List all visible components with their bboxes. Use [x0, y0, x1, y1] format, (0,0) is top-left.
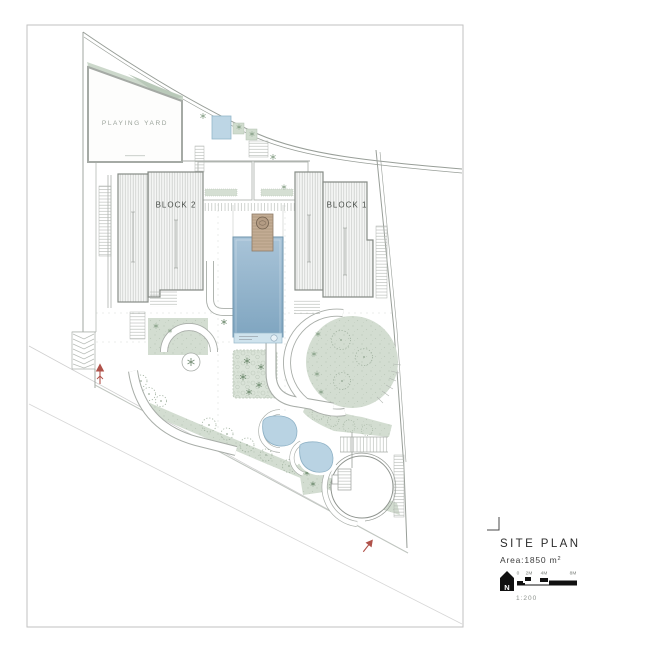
scale-ratio-label: 1:200	[516, 595, 537, 602]
site-plan-drawing: PLAYING YARD	[0, 0, 650, 650]
area-label: Area:1850 m2	[500, 555, 561, 565]
stairs	[376, 226, 387, 298]
spa-strip	[234, 333, 282, 343]
tiny-caption-mark	[125, 155, 145, 156]
stairs	[294, 299, 320, 314]
stairs	[338, 469, 351, 490]
stairs	[249, 141, 268, 157]
site-plan-title: SITE PLAN	[500, 538, 580, 550]
scale-tick-label: 0	[517, 571, 520, 577]
scale-tick-label: 2M	[526, 571, 533, 577]
block-2-building: BLOCK 2	[99, 172, 203, 308]
site-plan-sheet: PLAYING YARD	[0, 0, 650, 650]
deck-table	[257, 217, 269, 229]
entrance-arrow-bottom	[361, 538, 375, 553]
stairs	[150, 291, 177, 307]
upper-water-feature	[212, 116, 257, 140]
pond-upper	[261, 412, 297, 450]
north-letter: N	[504, 583, 509, 592]
swimming-pool	[233, 205, 283, 343]
block-1-label: BLOCK 1	[327, 201, 368, 210]
playing-yard-label: PLAYING YARD	[102, 120, 168, 127]
stairs	[195, 146, 204, 172]
parking-ticks	[200, 203, 305, 211]
block-1-building: BLOCK 1	[294, 172, 387, 314]
scale-bar: 0 2M 4M 8M 1:200	[516, 571, 577, 603]
scale-tick-label: 8M	[570, 571, 577, 577]
block-2-label: BLOCK 2	[156, 201, 197, 210]
pond-lower	[292, 442, 333, 474]
corner-mark	[487, 517, 499, 530]
scale-tick-label: 4M	[541, 571, 548, 577]
title-block: SITE PLAN Area:1850 m2 N 0 2M 4M 8M 1:20…	[487, 517, 580, 602]
ramp-chevrons	[72, 332, 95, 369]
stairs	[99, 186, 111, 256]
entrance-arrow-left	[97, 365, 104, 385]
pool-deck	[252, 214, 273, 251]
north-arrow-icon: N	[500, 571, 514, 592]
